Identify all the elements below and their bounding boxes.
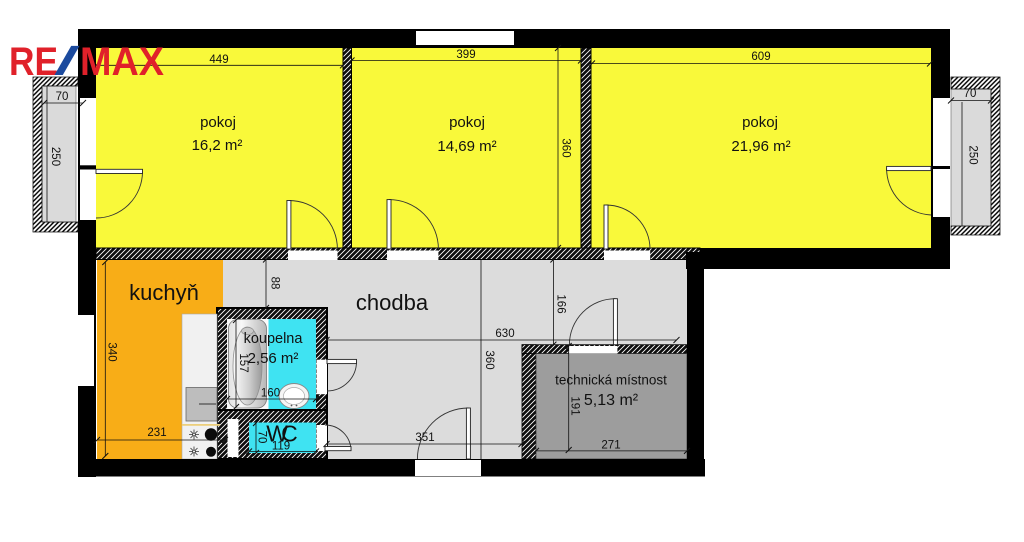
svg-text:16,2 m²: 16,2 m² xyxy=(192,137,243,154)
svg-text:160: 160 xyxy=(261,388,280,400)
svg-text:191: 191 xyxy=(569,396,581,415)
svg-text:271: 271 xyxy=(601,440,620,452)
svg-text:250: 250 xyxy=(49,147,61,166)
svg-text:14,69 m²: 14,69 m² xyxy=(437,138,496,155)
svg-text:21,96 m²: 21,96 m² xyxy=(731,138,790,155)
svg-text:360: 360 xyxy=(560,138,572,157)
svg-text:pokoj: pokoj xyxy=(449,114,485,131)
svg-text:pokoj: pokoj xyxy=(200,114,236,131)
svg-text:88: 88 xyxy=(269,277,281,290)
svg-text:pokoj: pokoj xyxy=(742,114,778,131)
svg-text:399: 399 xyxy=(456,49,475,61)
svg-text:609: 609 xyxy=(751,51,770,63)
svg-text:technická místnost: technická místnost xyxy=(555,373,667,388)
svg-text:351: 351 xyxy=(415,432,434,444)
svg-text:RE: RE xyxy=(9,40,58,84)
svg-text:2,56 m²: 2,56 m² xyxy=(248,350,299,367)
svg-text:70: 70 xyxy=(964,88,977,100)
svg-text:kuchyň: kuchyň xyxy=(129,280,199,305)
svg-text:koupelna: koupelna xyxy=(244,331,304,347)
svg-text:70: 70 xyxy=(56,91,69,103)
svg-text:250: 250 xyxy=(967,145,979,164)
svg-text:chodba: chodba xyxy=(356,290,429,315)
svg-text:MAX: MAX xyxy=(80,40,164,84)
svg-text:231: 231 xyxy=(147,427,166,439)
svg-text:449: 449 xyxy=(209,54,228,66)
svg-text:340: 340 xyxy=(106,342,118,361)
svg-text:360: 360 xyxy=(483,350,495,369)
svg-text:5,13 m²: 5,13 m² xyxy=(584,392,639,409)
svg-text:630: 630 xyxy=(495,328,514,340)
svg-text:WC: WC xyxy=(266,421,298,447)
svg-text:166: 166 xyxy=(555,294,567,313)
